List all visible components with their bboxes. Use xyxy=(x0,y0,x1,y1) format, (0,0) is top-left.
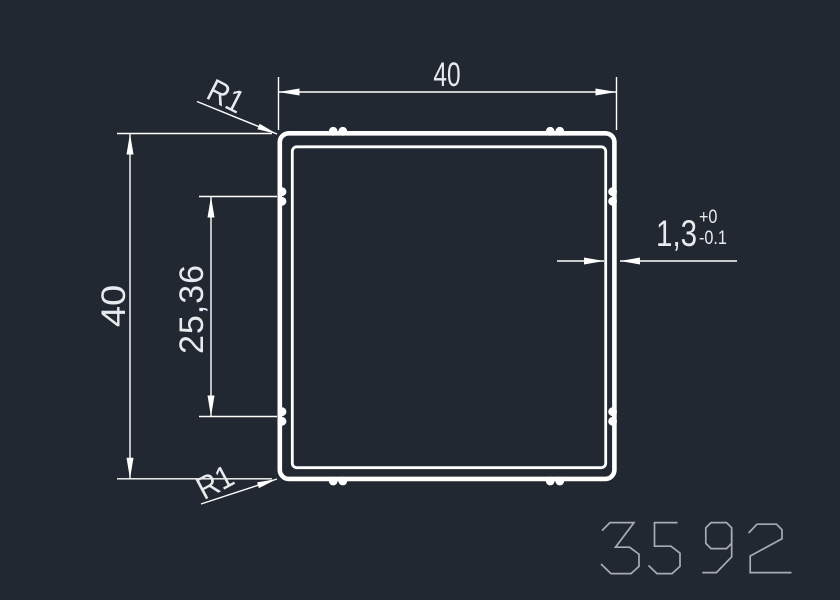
serration-mark xyxy=(338,127,347,136)
dim-arrow-down xyxy=(208,396,215,417)
serration-mark xyxy=(555,477,564,486)
cad-canvas: 40 40 25,36 1,3 +0 -0.1 R1 R1 3592 xyxy=(0,0,840,600)
serration-mark xyxy=(608,417,617,426)
tolerance-lower: -0.1 xyxy=(699,229,727,250)
serration-mark xyxy=(278,417,287,426)
dim-arrow-right xyxy=(596,89,617,96)
part-number-glyphs xyxy=(601,523,792,574)
serration-marks xyxy=(278,127,617,486)
serration-mark xyxy=(555,127,564,136)
glyph-2 xyxy=(749,524,792,572)
serration-mark xyxy=(608,407,617,416)
profile-inner-wall xyxy=(292,147,605,468)
tolerance-upper: +0 xyxy=(699,208,727,229)
dim-arrow-left xyxy=(620,258,640,265)
serration-mark xyxy=(278,197,287,206)
dim-wall-tolerance: +0 -0.1 xyxy=(699,208,727,249)
dim-width-text: 40 xyxy=(433,58,460,92)
serration-mark xyxy=(338,477,347,486)
glyph-9 xyxy=(706,523,732,549)
dim-wall-text: 1,3 xyxy=(656,215,697,252)
dim-arrow-left xyxy=(279,89,300,96)
dim-arrow-down xyxy=(127,458,134,479)
serration-mark xyxy=(546,477,555,486)
leader-arrow xyxy=(257,479,277,488)
dim-height-text: 40 xyxy=(97,285,131,327)
serration-mark xyxy=(278,407,287,416)
serration-mark xyxy=(278,187,287,196)
serration-mark xyxy=(329,477,338,486)
serration-mark xyxy=(546,127,555,136)
dim-arrow-up xyxy=(208,197,215,218)
dim-arrow-up xyxy=(127,134,134,155)
profile-outer-wall xyxy=(280,133,615,479)
leader-arrow xyxy=(257,124,277,134)
dim-arrow-right xyxy=(584,258,604,265)
glyph-9-tail xyxy=(702,530,731,573)
profile-outline xyxy=(280,133,615,479)
serration-mark xyxy=(608,187,617,196)
serration-mark xyxy=(329,127,338,136)
serration-mark xyxy=(608,197,617,206)
glyph-3 xyxy=(601,523,639,574)
glyph-5 xyxy=(649,523,681,574)
dim-groove-spacing-text: 25,36 xyxy=(175,264,209,354)
dimension-wall-thickness xyxy=(557,258,737,265)
